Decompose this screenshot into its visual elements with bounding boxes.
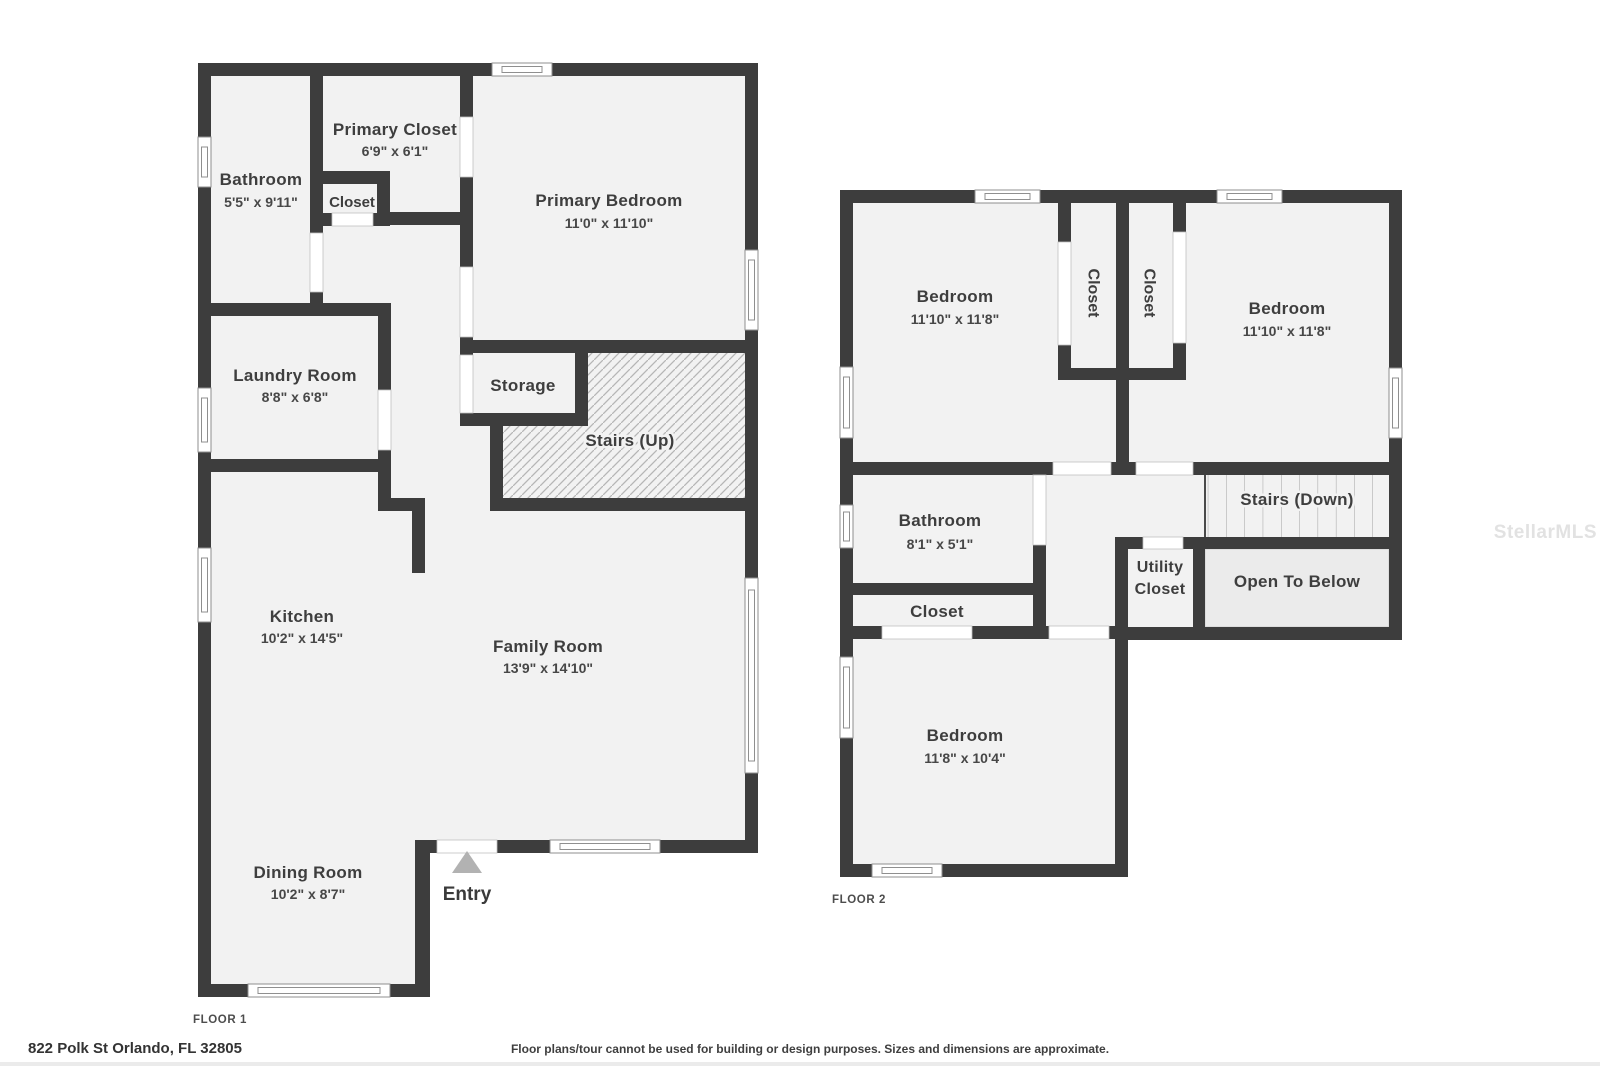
room-label-bathroom-f2: Bathroom <box>899 511 982 530</box>
room-label-closet-right-f2: Closet <box>1141 269 1158 319</box>
room-label-stairs-up: Stairs (Up) <box>585 431 674 450</box>
room-label-utility-line1: Utility <box>1137 559 1184 576</box>
room-dims-bedroom-bottom: 11'8" x 10'4" <box>924 750 1005 766</box>
room-label-kitchen: Kitchen <box>270 607 334 626</box>
floor-2-tag: FLOOR 2 <box>832 894 886 906</box>
room-label-laundry: Laundry Room <box>233 366 357 385</box>
property-address: 822 Polk St Orlando, FL 32805 <box>28 1040 242 1057</box>
room-label-entry: Entry <box>443 884 492 905</box>
window <box>745 250 758 330</box>
window <box>840 505 853 548</box>
window <box>198 388 211 452</box>
window <box>248 984 390 997</box>
room-dims-laundry: 8'8" x 6'8" <box>262 389 329 405</box>
window <box>198 137 211 187</box>
window <box>1389 368 1402 438</box>
window <box>198 548 211 622</box>
floor-1-plan: Bathroom 5'5" x 9'11" Primary Closet 6'9… <box>193 63 758 1026</box>
room-label-closet-f1: Closet <box>329 194 375 211</box>
room-dims-bedroom-right: 11'10" x 11'8" <box>1243 323 1331 339</box>
room-label-storage: Storage <box>490 376 555 395</box>
room-label-bathroom-f1: Bathroom <box>220 170 303 189</box>
room-dims-primary-closet: 6'9" x 6'1" <box>362 143 429 159</box>
room-dims-dining-room: 10'2" x 8'7" <box>271 886 345 902</box>
room-dims-bathroom-f2: 8'1" x 5'1" <box>907 536 974 552</box>
room-label-bedroom-right: Bedroom <box>1249 299 1326 318</box>
room-dims-bedroom-left: 11'10" x 11'8" <box>911 311 999 327</box>
floor-2-plan: Bedroom 11'10" x 11'8" Closet Closet Bed… <box>832 190 1402 906</box>
window <box>840 657 853 738</box>
room-dims-family-room: 13'9" x 14'10" <box>503 660 593 676</box>
window <box>550 840 660 853</box>
window <box>975 190 1040 203</box>
disclaimer-text: Floor plans/tour cannot be used for buil… <box>511 1042 1109 1056</box>
footer-strip <box>0 1062 1600 1066</box>
room-label-dining-room: Dining Room <box>253 863 362 882</box>
floor-1-tag: FLOOR 1 <box>193 1014 247 1026</box>
room-label-open-to-below: Open To Below <box>1234 572 1361 591</box>
room-label-primary-bedroom: Primary Bedroom <box>535 191 682 210</box>
room-label-utility-line2: Closet <box>1135 581 1186 598</box>
room-label-bedroom-left: Bedroom <box>917 287 994 306</box>
floor-plan-page: Bathroom 5'5" x 9'11" Primary Closet 6'9… <box>0 0 1600 1066</box>
room-label-primary-closet: Primary Closet <box>333 120 457 139</box>
room-label-closet-hall: Closet <box>910 602 964 621</box>
window <box>1217 190 1282 203</box>
room-dims-bathroom-f1: 5'5" x 9'11" <box>224 194 298 210</box>
stellar-mls-watermark: StellarMLS <box>1494 522 1597 543</box>
window <box>840 367 853 438</box>
floor-plan-drawing: Bathroom 5'5" x 9'11" Primary Closet 6'9… <box>0 0 1600 1066</box>
room-label-family-room: Family Room <box>493 637 603 656</box>
room-label-closet-left-f2: Closet <box>1085 269 1102 319</box>
window <box>745 578 758 773</box>
window <box>872 864 942 877</box>
room-dims-primary-bedroom: 11'0" x 11'10" <box>565 215 653 231</box>
room-label-bedroom-bottom: Bedroom <box>927 726 1004 745</box>
entry-arrow-icon <box>452 851 482 873</box>
window <box>492 63 552 76</box>
room-dims-kitchen: 10'2" x 14'5" <box>261 630 343 646</box>
room-label-stairs-down: Stairs (Down) <box>1240 490 1353 509</box>
